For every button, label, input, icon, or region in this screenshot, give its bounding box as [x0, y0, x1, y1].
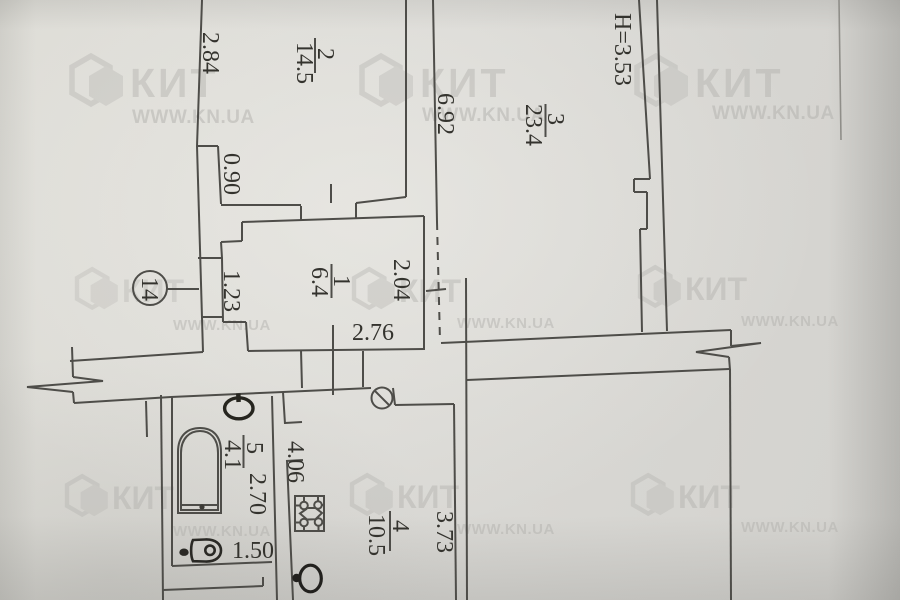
- svg-text:КИТ: КИТ: [695, 60, 784, 106]
- svg-text:10.5: 10.5: [363, 514, 389, 556]
- svg-text:6.4: 6.4: [306, 267, 332, 297]
- svg-text:WWW.KN.UA: WWW.KN.UA: [712, 103, 835, 124]
- svg-text:WWW.KN.UA: WWW.KN.UA: [741, 313, 839, 330]
- svg-text:0.90: 0.90: [218, 153, 244, 195]
- svg-text:14.5: 14.5: [291, 42, 317, 84]
- svg-text:3.73: 3.73: [431, 511, 457, 553]
- svg-text:2.04: 2.04: [388, 259, 414, 301]
- svg-text:КИТ: КИТ: [112, 480, 175, 516]
- svg-text:WWW.KN.UA: WWW.KN.UA: [457, 521, 555, 538]
- svg-text:4.1: 4.1: [219, 440, 245, 470]
- svg-text:WWW.KN.UA: WWW.KN.UA: [173, 317, 271, 334]
- svg-text:23.4: 23.4: [520, 104, 546, 146]
- svg-text:2.70: 2.70: [244, 473, 270, 515]
- svg-text:2.84: 2.84: [197, 32, 223, 74]
- svg-text:КИТ: КИТ: [685, 271, 748, 307]
- svg-text:14: 14: [136, 277, 162, 301]
- svg-text:1.23: 1.23: [218, 270, 244, 312]
- svg-text:WWW.KN.UA: WWW.KN.UA: [741, 519, 839, 536]
- svg-text:4.06: 4.06: [282, 441, 308, 483]
- svg-text:WWW.KN.UA: WWW.KN.UA: [457, 315, 555, 332]
- svg-text:2.76: 2.76: [352, 320, 394, 346]
- svg-text:КИТ: КИТ: [397, 479, 460, 515]
- svg-text:1.50: 1.50: [232, 538, 274, 564]
- svg-text:6.92: 6.92: [432, 93, 458, 135]
- svg-text:Н=3.53: Н=3.53: [609, 13, 635, 86]
- svg-text:WWW.KN.UA: WWW.KN.UA: [132, 107, 255, 128]
